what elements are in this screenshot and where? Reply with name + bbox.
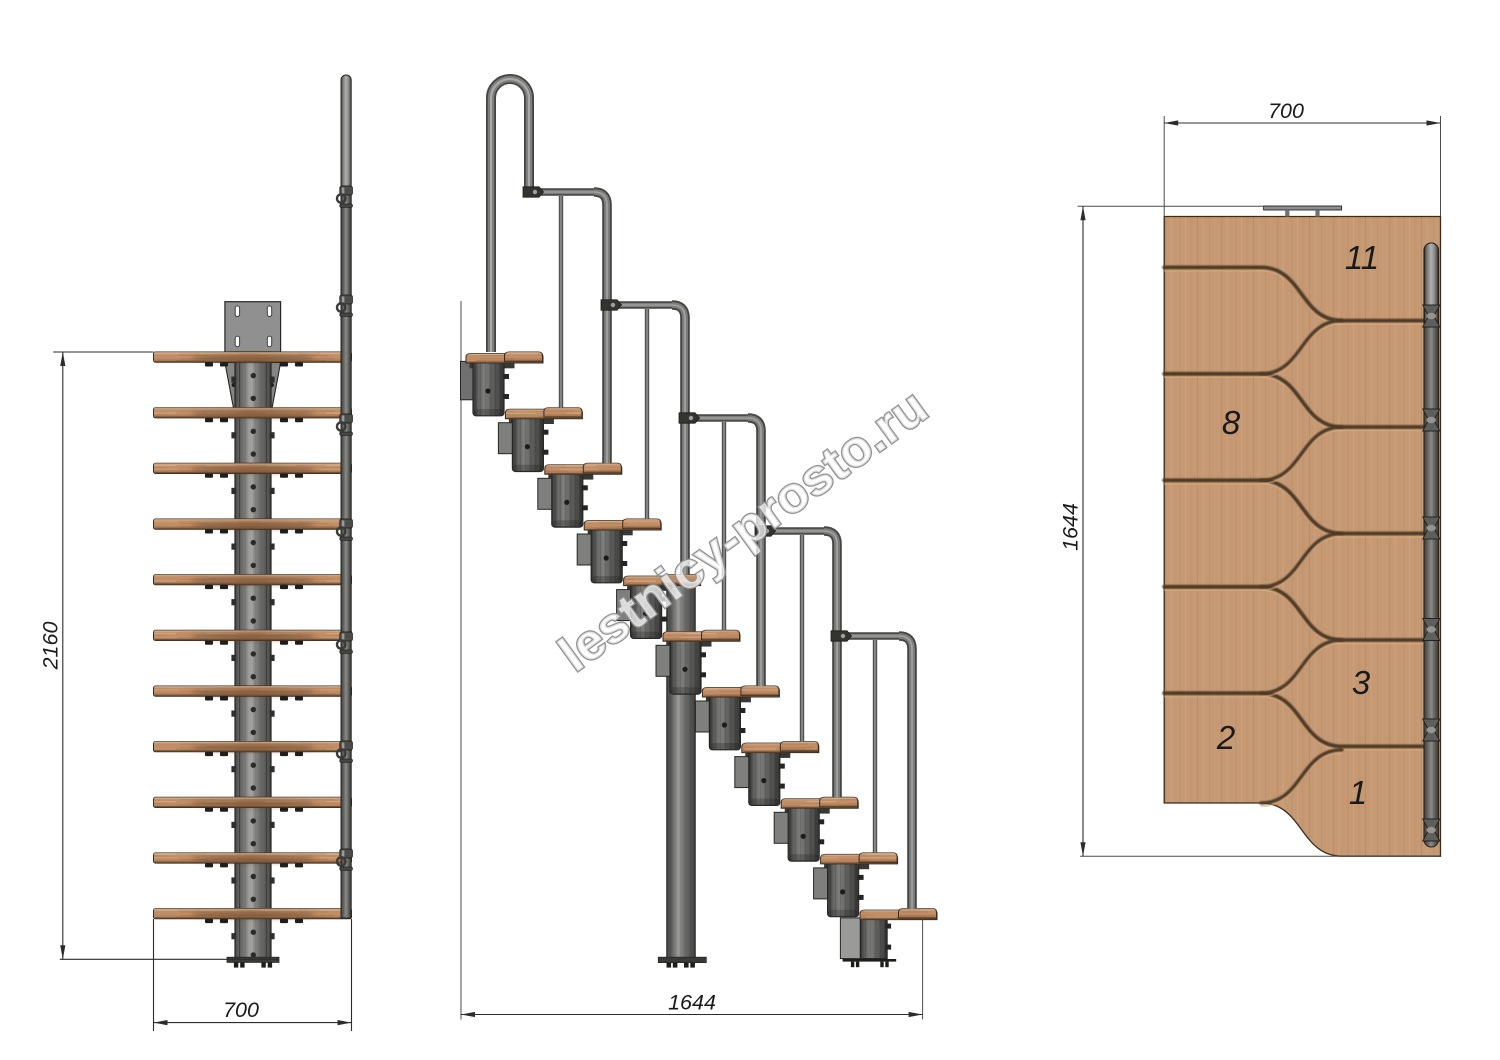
svg-text:2: 2 xyxy=(1216,719,1235,756)
svg-text:700: 700 xyxy=(1268,99,1304,123)
svg-text:2160: 2160 xyxy=(39,622,63,671)
svg-text:11: 11 xyxy=(1345,239,1379,276)
svg-text:1644: 1644 xyxy=(668,991,716,1015)
svg-text:1644: 1644 xyxy=(1059,503,1083,551)
svg-text:3: 3 xyxy=(1352,664,1371,701)
svg-text:8: 8 xyxy=(1222,404,1241,441)
svg-text:1: 1 xyxy=(1349,774,1367,811)
svg-text:700: 700 xyxy=(223,998,259,1022)
